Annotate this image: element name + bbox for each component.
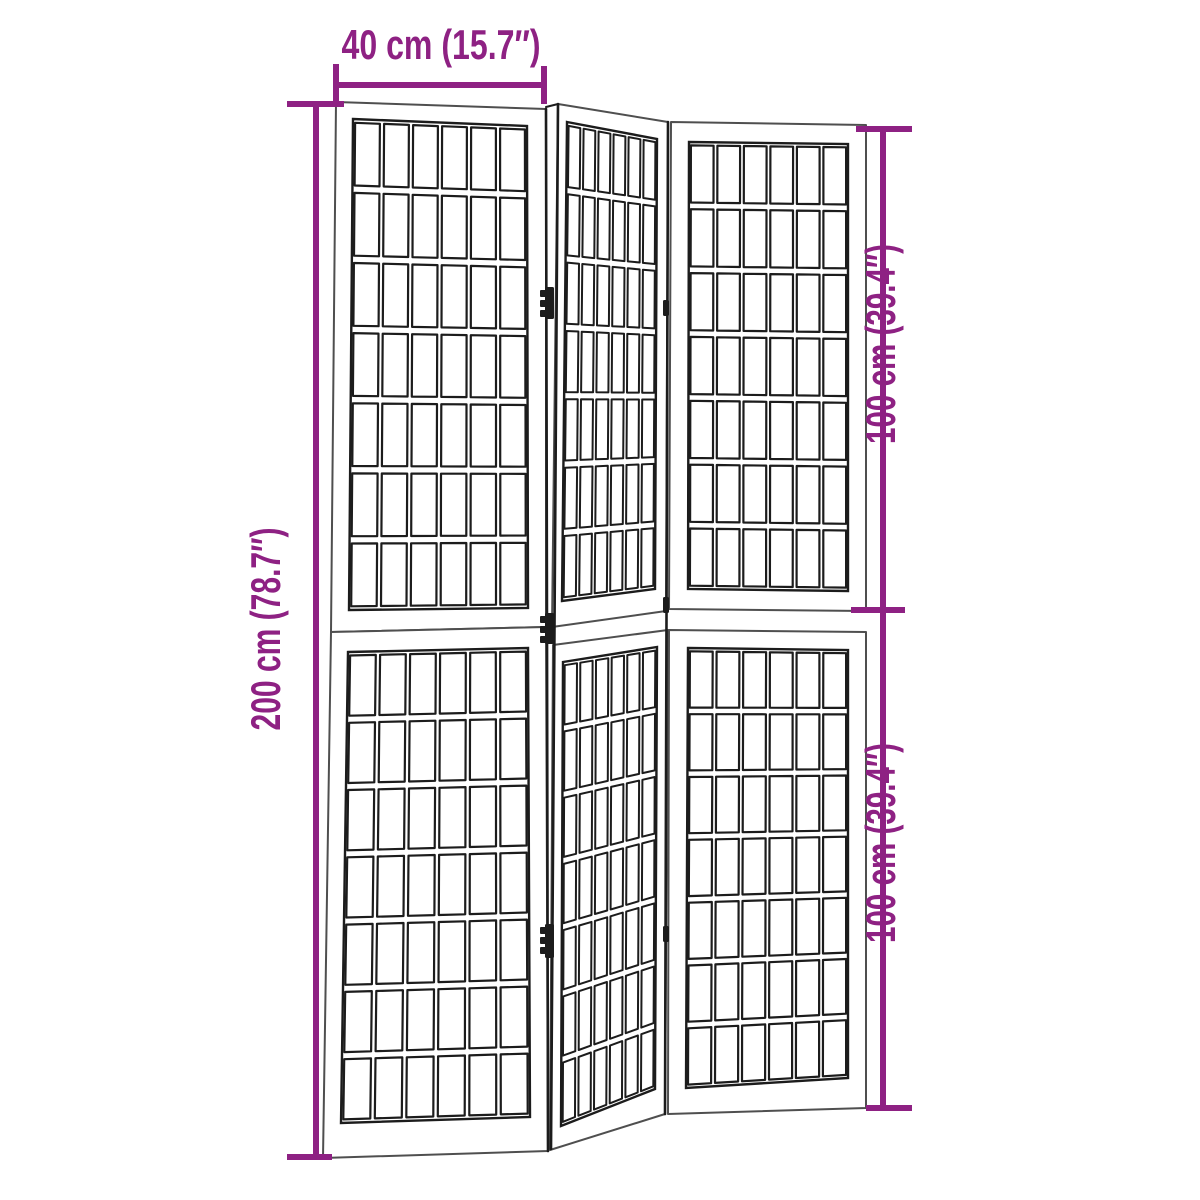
hinge-knuckle xyxy=(540,300,546,307)
hinge-knuckle xyxy=(540,616,546,623)
hinge-knuckle xyxy=(540,937,546,944)
diagram-stage: 40 cm (15.7″)200 cm (78.7″)100 cm (39.4″… xyxy=(0,0,1200,1200)
hinge-knuckle xyxy=(540,626,546,633)
panel-section-left-lower xyxy=(323,627,548,1158)
hinge-plate xyxy=(545,613,554,644)
room-divider-dimension-diagram: 40 cm (15.7″)200 cm (78.7″)100 cm (39.4″… xyxy=(0,0,1200,1200)
lower-section-dimension-label: 100 cm (39.4″) xyxy=(857,743,904,943)
panel-section-right-upper xyxy=(669,122,866,611)
hinge-left-bottom-icon xyxy=(540,924,554,958)
hinge-plate xyxy=(545,924,554,958)
hinge-knuckle xyxy=(540,636,546,643)
hinge-plate xyxy=(545,287,554,319)
hinge-right-top-icon xyxy=(663,300,669,316)
panel-section-right-lower xyxy=(668,630,866,1114)
hinge-knuckle xyxy=(540,290,546,297)
panel-section-left-upper xyxy=(331,102,546,632)
hinge-knuckle xyxy=(540,947,546,954)
hinge-knuckle xyxy=(540,310,546,317)
upper-section-dimension-label: 100 cm (39.4″) xyxy=(857,244,904,444)
height-dimension-label: 200 cm (78.7″) xyxy=(242,528,289,731)
hinge-right-middle-icon xyxy=(663,597,669,613)
panel-section-middle-lower xyxy=(550,630,668,1150)
hinge-left-middle-icon xyxy=(540,613,554,644)
hinge-plate xyxy=(663,300,669,316)
hinge-plate xyxy=(663,597,669,613)
hinge-knuckle xyxy=(540,927,546,934)
width-dimension-label: 40 cm (15.7″) xyxy=(342,21,541,68)
hinge-left-top-icon xyxy=(540,287,554,319)
hinge-right-bottom-icon xyxy=(663,926,669,942)
hinge-plate xyxy=(663,926,669,942)
panel-section-middle-upper xyxy=(552,104,668,627)
